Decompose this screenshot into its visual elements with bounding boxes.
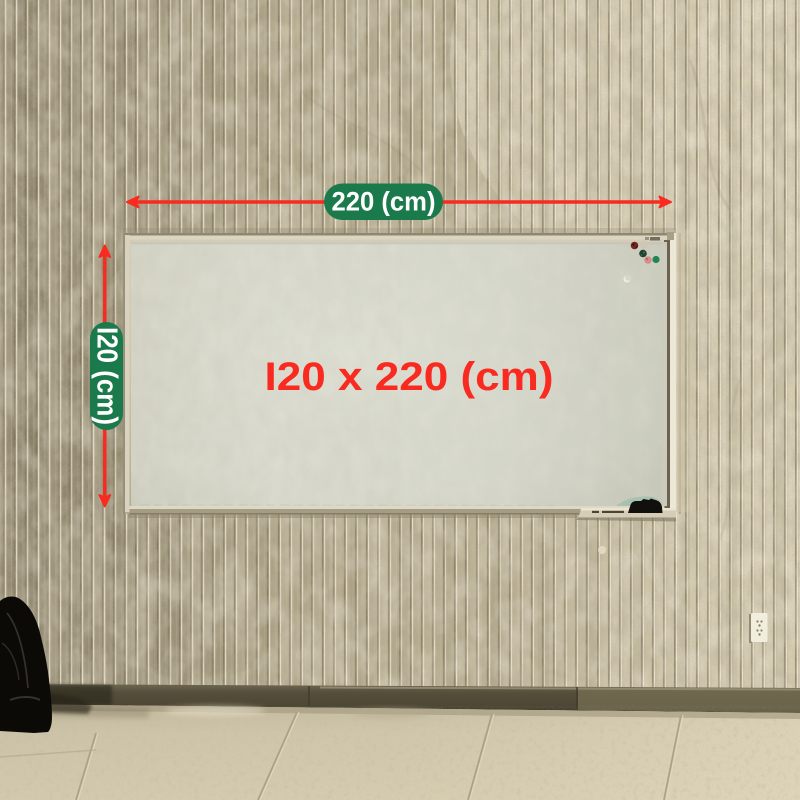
svg-text:220 (cm): 220 (cm)	[332, 187, 436, 217]
svg-text:I20 (cm): I20 (cm)	[91, 327, 123, 425]
svg-text:I20 x 220 (cm): I20 x 220 (cm)	[265, 355, 554, 399]
